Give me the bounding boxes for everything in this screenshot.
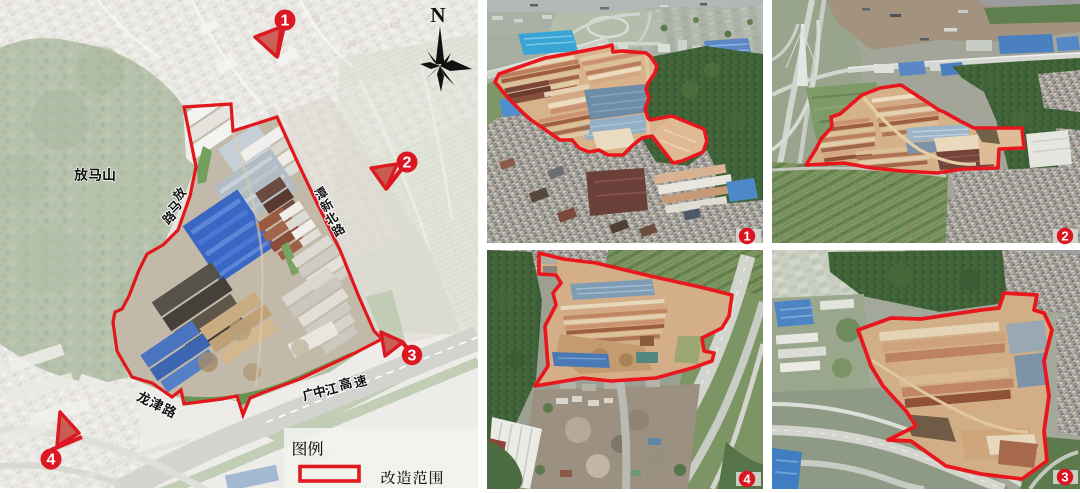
svg-text:3: 3 — [1061, 470, 1068, 485]
svg-text:1: 1 — [743, 229, 750, 244]
svg-text:N: N — [430, 3, 445, 27]
svg-text:1: 1 — [281, 13, 290, 30]
svg-text:4: 4 — [47, 452, 56, 469]
svg-text:3: 3 — [408, 348, 417, 365]
svg-text:4: 4 — [743, 472, 751, 487]
svg-text:2: 2 — [1061, 229, 1068, 244]
svg-text:2: 2 — [403, 155, 412, 172]
